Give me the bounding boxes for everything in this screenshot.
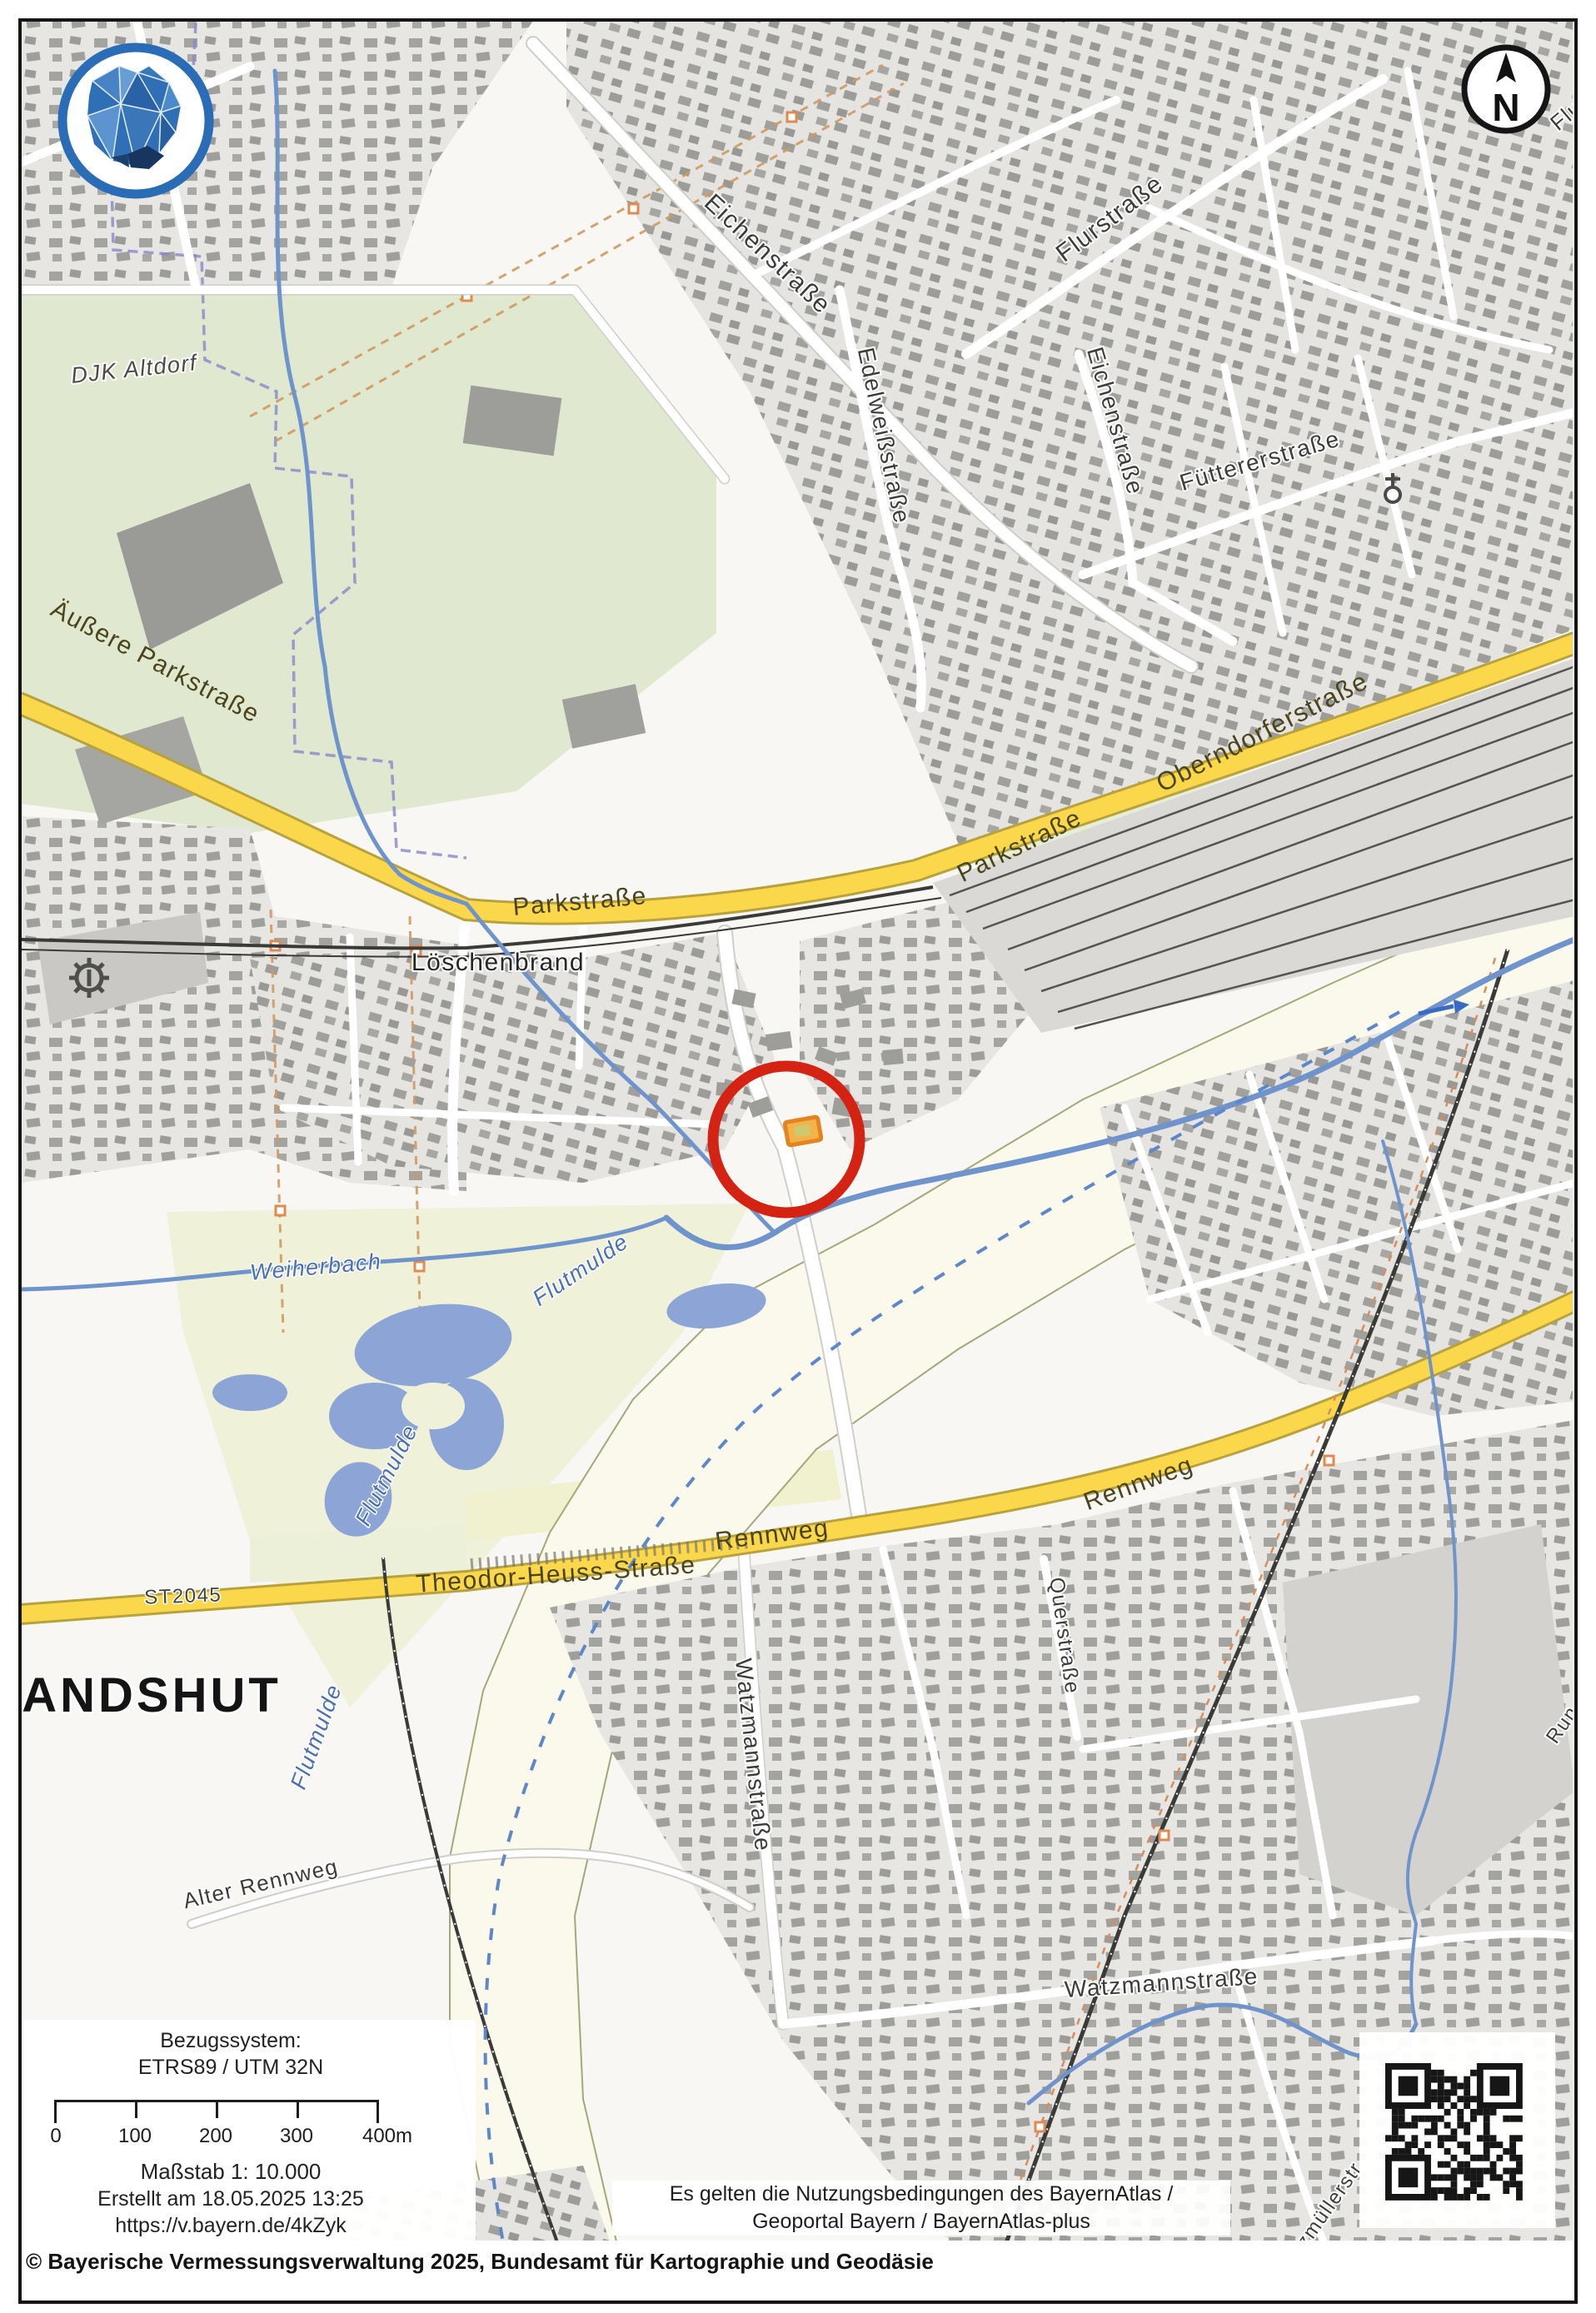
scale-tick-0: 0 (50, 2125, 61, 2148)
scale-text: Maßstab 1: 10.000 (47, 2159, 414, 2185)
terms-text: Es gelten die Nutzungsbedingungen des Ba… (612, 2181, 1230, 2236)
map-label-9: Löschenbrand (411, 949, 585, 976)
reference-system-value: ETRS89 / UTM 32N (47, 2056, 414, 2080)
church-icon (1385, 473, 1400, 502)
created-timestamp: Erstellt am 18.05.2025 13:25 (47, 2187, 414, 2211)
map-label-15: ANDSHUT (22, 1668, 282, 1722)
scale-tick-300: 300 (280, 2125, 313, 2148)
copyright-text: © Bayerische Vermessungsverwaltung 2025,… (26, 2249, 934, 2275)
terms-line-2: Geoportal Bayern / BayernAtlas-plus (612, 2208, 1230, 2236)
terms-line-1: Es gelten die Nutzungsbedingungen des Ba… (612, 2181, 1230, 2208)
reference-system-title: Bezugssystem: (47, 2029, 414, 2053)
scale-bar: 0 100 200 300 400m (54, 2100, 379, 2150)
short-url: https://v.bayern.de/4kZyk (47, 2214, 414, 2238)
scale-tick-100: 100 (118, 2125, 152, 2148)
north-compass: N (1464, 47, 1548, 131)
bayernatlas-logo-icon (62, 47, 209, 194)
scale-tick-400m: 400m (362, 2125, 412, 2148)
map-canvas: EichenstraßeFlurstraßeEdelweißstraßeEich… (0, 0, 1596, 2313)
waterworks-gear-icon (69, 958, 109, 998)
scale-tick-200: 200 (199, 2125, 232, 2148)
map-export-page: EichenstraßeFlurstraßeEdelweißstraßeEich… (0, 0, 1596, 2313)
map-label-16: ST2045 (144, 1583, 222, 1608)
compass-n-label: N (1492, 86, 1519, 129)
map-layers: EichenstraßeFlurstraßeEdelweißstraßeEich… (21, 21, 1596, 2313)
